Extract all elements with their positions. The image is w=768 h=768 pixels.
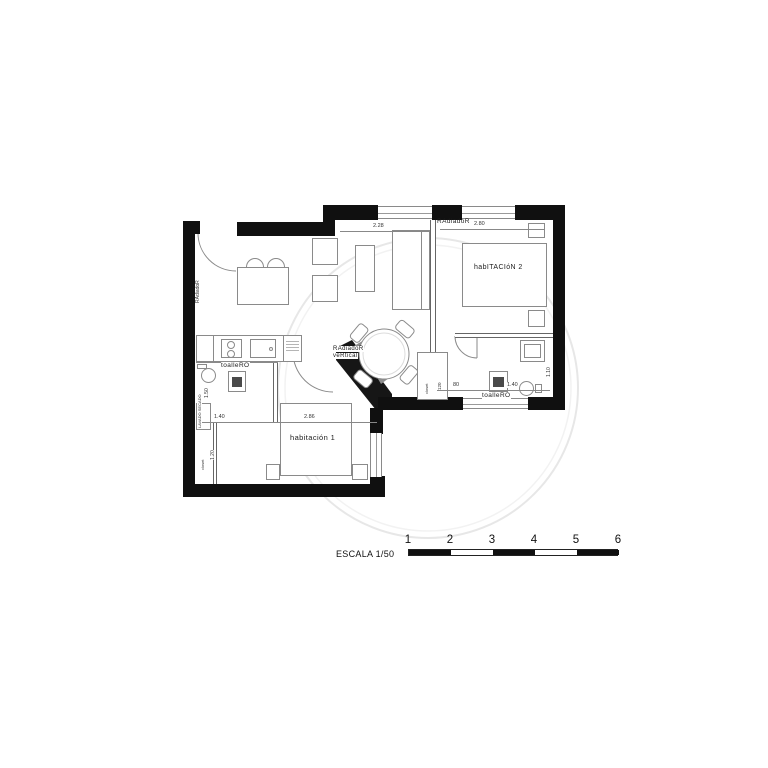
dimline-bath2-chain — [437, 390, 550, 391]
dimline-living-window — [340, 231, 430, 232]
scale-segment-5 — [577, 550, 619, 555]
scale-tick-2: 2 — [447, 534, 453, 546]
closet-room1-label: closet — [200, 460, 205, 470]
scale-segment-3 — [493, 550, 535, 555]
laundry-label: LAVADO SECADO — [197, 394, 202, 428]
scale-tick-4: 4 — [531, 534, 537, 546]
dim-bath1-width: 1.40 — [213, 414, 226, 420]
towel-rail-bath1-label: toalleRO — [221, 362, 250, 369]
scale-tick-6: 6 — [615, 534, 621, 546]
dimline-room1-chain — [197, 422, 377, 423]
scale-segment-4 — [535, 550, 577, 555]
towel-rail-bath2-label: toalleRO — [482, 392, 511, 399]
hall-cabinet-label: closet — [424, 384, 429, 394]
scale-bar-segments — [408, 549, 618, 556]
dim-bath2-width: 1.40 — [506, 382, 519, 388]
dim-room2-window: 2.80 — [473, 221, 486, 227]
dim-bath2-depth: 1.10 — [546, 367, 552, 377]
room1-label: habitación 1 — [290, 433, 335, 442]
radiator-vertical-label-1: RAdiadoR — [333, 346, 364, 352]
scale-segment-2 — [451, 550, 493, 555]
dim-closet-width: 1.20 — [210, 450, 216, 460]
scale-segment-1 — [409, 550, 451, 555]
dim-hall-cabinet: 120 — [437, 382, 442, 390]
dim-hall-width: 80 — [452, 382, 460, 388]
scale-tick-5: 5 — [573, 534, 579, 546]
floor-plan-canvas: RAdiadoR RAdiadoR RAdiadoR veRtical habI… — [0, 0, 768, 768]
dim-living-window: 2.28 — [372, 223, 385, 229]
scale-tick-3: 3 — [489, 534, 495, 546]
scale-bar: ESCALA 1/50 1 2 3 4 5 6 — [0, 0, 768, 768]
scale-tick-1: 1 — [405, 534, 411, 546]
dim-room1-width: 2.86 — [303, 414, 316, 420]
radiator-vertical-label-2: veRtical — [333, 353, 358, 359]
dim-bath1-depth: 1.50 — [204, 388, 210, 398]
radiator-left-label: RAdiadoR — [195, 280, 201, 303]
dimline-room2-window — [440, 229, 545, 230]
scale-label: ESCALA 1/50 — [336, 549, 394, 559]
